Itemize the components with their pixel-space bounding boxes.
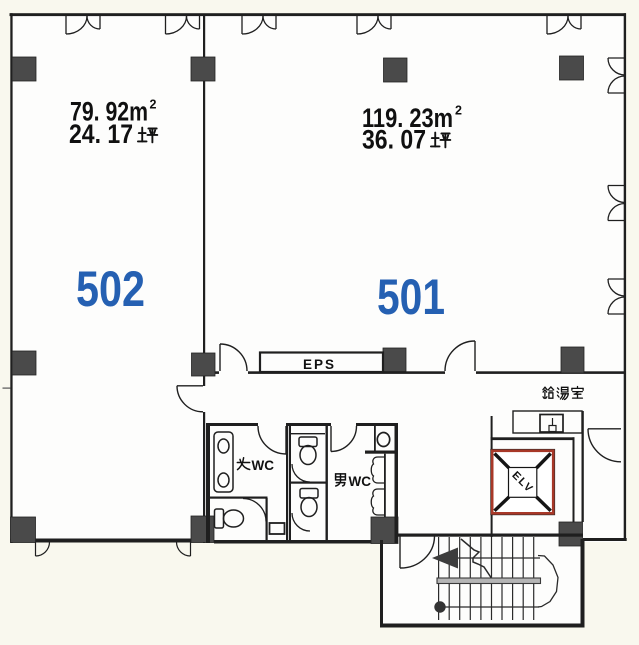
svg-text:36. 07: 36. 07 bbox=[362, 125, 426, 155]
svg-text:2: 2 bbox=[455, 104, 462, 118]
svg-text:24. 17: 24. 17 bbox=[69, 119, 133, 149]
svg-text:501: 501 bbox=[377, 269, 445, 325]
svg-text:WC: WC bbox=[349, 474, 372, 489]
svg-text:502: 502 bbox=[76, 261, 145, 317]
svg-text:EPS: EPS bbox=[303, 357, 336, 372]
svg-text:2: 2 bbox=[150, 98, 157, 112]
svg-text:WC: WC bbox=[252, 458, 275, 473]
